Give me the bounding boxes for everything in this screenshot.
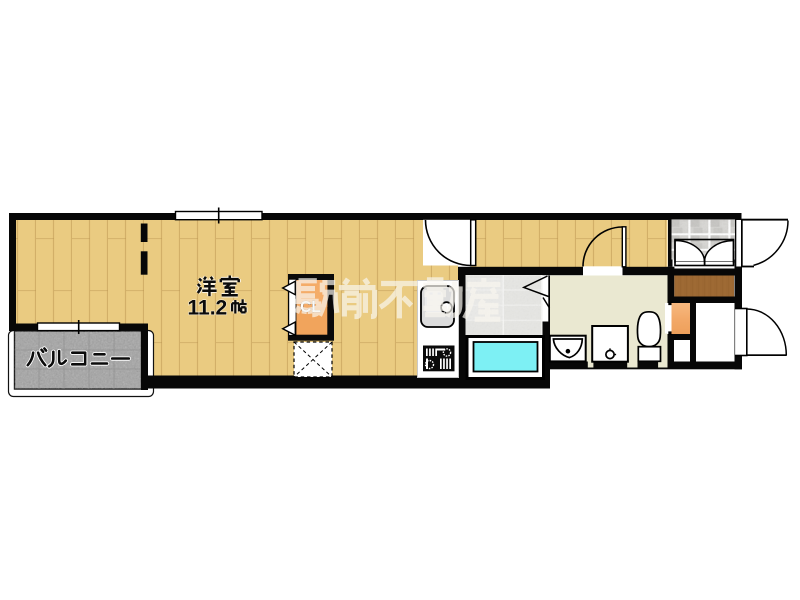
svg-text:11.2: 11.2: [188, 296, 228, 319]
